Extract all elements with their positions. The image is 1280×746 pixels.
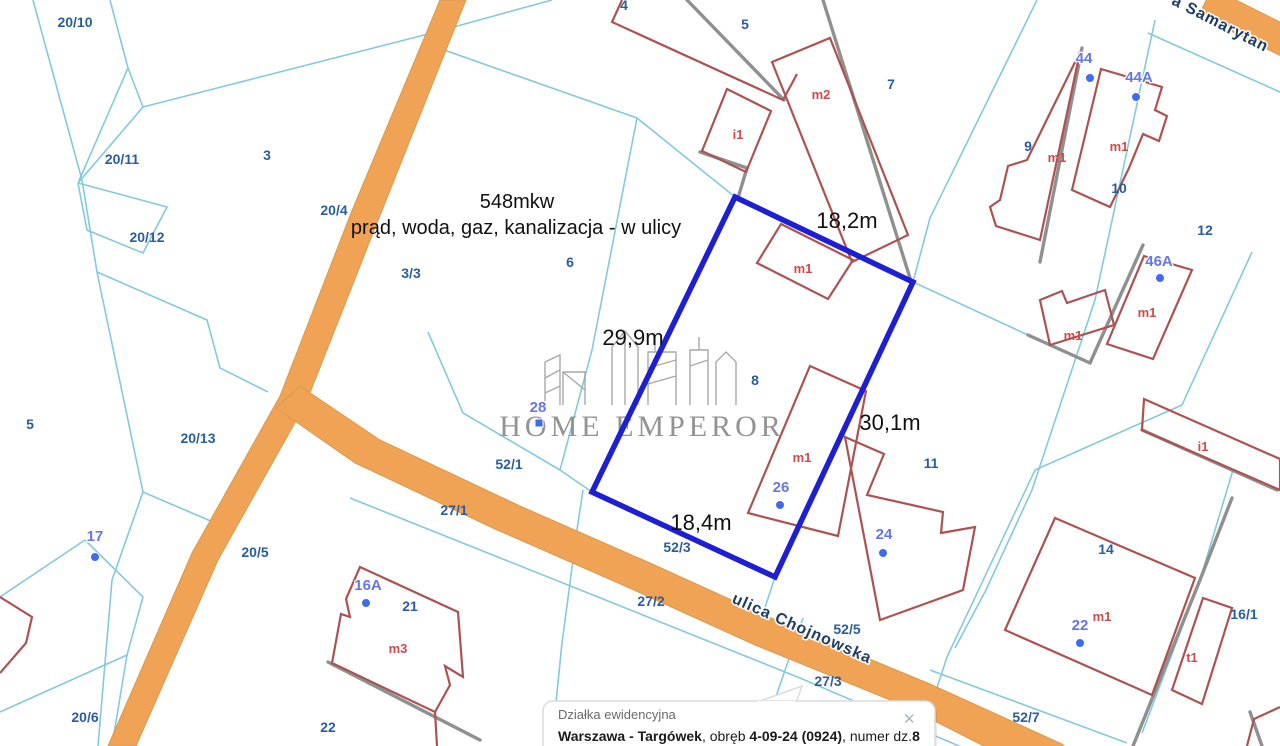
parcel-label: 52/7 bbox=[1012, 709, 1039, 725]
popup-region: Warszawa - Targówek bbox=[558, 728, 702, 744]
parcel-boundary-line bbox=[933, 252, 1252, 700]
address-marker-dot[interactable] bbox=[91, 553, 100, 562]
building-outline bbox=[990, 52, 1080, 240]
building-outline bbox=[0, 597, 32, 673]
address-marker[interactable]: 16A bbox=[354, 577, 382, 608]
parcel-boundary-line bbox=[78, 107, 143, 183]
building-label: m1 bbox=[1138, 305, 1157, 320]
parcel-label: 27/1 bbox=[440, 502, 467, 518]
parcel-label: 52/1 bbox=[495, 456, 522, 472]
building-label: m1 bbox=[1110, 139, 1129, 154]
parcel-label: 6 bbox=[566, 254, 574, 270]
parcel-label: 9 bbox=[1024, 138, 1032, 154]
parcel-label: 20/5 bbox=[241, 544, 268, 560]
parcel-label: 3/3 bbox=[401, 265, 421, 281]
parcel-boundary-line bbox=[955, 20, 1155, 648]
popup-title: Działka ewidencyjna bbox=[558, 707, 677, 722]
address-marker[interactable]: 44A bbox=[1125, 69, 1153, 102]
building-outlines bbox=[0, 0, 1280, 746]
address-number: 44A bbox=[1125, 69, 1153, 86]
parcel-label: 8 bbox=[751, 372, 759, 388]
building-label: m1 bbox=[1093, 609, 1112, 624]
parcel-boundary-line bbox=[0, 540, 85, 597]
parcel-label: 27/3 bbox=[814, 673, 841, 689]
parcel-label: 20/4 bbox=[320, 202, 347, 218]
address-marker-dot[interactable] bbox=[776, 501, 785, 510]
parcel-label: 27/2 bbox=[637, 593, 664, 609]
address-marker[interactable]: 24 bbox=[876, 526, 893, 558]
address-marker[interactable]: 26 bbox=[773, 479, 790, 510]
parcel-label: 5 bbox=[741, 16, 749, 32]
popup-pointer-seam bbox=[757, 701, 795, 704]
parcel-boundary-line bbox=[143, 33, 432, 107]
building-label: m1 bbox=[1064, 328, 1083, 343]
dimension-left: 29,9m bbox=[602, 325, 663, 350]
parcel-label: 20/12 bbox=[129, 229, 164, 245]
address-marker-dot[interactable] bbox=[1156, 274, 1165, 283]
building-label: t1 bbox=[1186, 650, 1198, 665]
parcel-label: 20/10 bbox=[57, 14, 92, 30]
parcel-boundary-line bbox=[143, 492, 213, 522]
dimension-top: 18,2m bbox=[816, 208, 877, 233]
parcel-boundary-line bbox=[128, 68, 143, 107]
wall-line bbox=[1090, 245, 1143, 363]
address-number: 24 bbox=[876, 526, 893, 543]
parcel-boundary-line bbox=[33, 0, 143, 746]
map-canvas[interactable]: HOME EMPEROR 18,2m 30,1m 18,4m 29,9m 548… bbox=[0, 0, 1280, 746]
address-number: 28 bbox=[530, 399, 547, 416]
roads bbox=[108, 0, 1280, 746]
address-marker[interactable]: 22 bbox=[1072, 617, 1089, 648]
parcel-boundary-line bbox=[97, 272, 268, 392]
parcel-label: 20/6 bbox=[71, 709, 98, 725]
parcel-label: 5 bbox=[26, 416, 34, 432]
parcel-label: 7 bbox=[887, 76, 895, 92]
address-number: 17 bbox=[87, 528, 104, 545]
building-outline bbox=[845, 437, 975, 620]
parcel-label: 14 bbox=[1098, 541, 1114, 557]
building-outline bbox=[1142, 399, 1280, 490]
popup-parcel-number: 8 bbox=[912, 728, 920, 744]
popup-close-button[interactable]: ✕ bbox=[903, 711, 916, 728]
parcel-label: 52/5 bbox=[833, 621, 860, 637]
annotation-utilities: prąd, woda, gaz, kanalizacja - w ulicy bbox=[351, 217, 681, 239]
parcel-label: 3 bbox=[263, 147, 271, 163]
address-number: 22 bbox=[1072, 617, 1089, 634]
address-marker[interactable]: 46A bbox=[1145, 253, 1173, 283]
address-marker-dot[interactable] bbox=[362, 599, 371, 608]
address-marker-dot[interactable] bbox=[1132, 93, 1141, 102]
building-labels: m2 i1 m1 m1 m1 m1 i1 m1 m1 m1 t1 m3 bbox=[389, 87, 1209, 665]
wall-line bbox=[687, 0, 784, 100]
parcel-label: 10 bbox=[1111, 180, 1127, 196]
parcel-boundary-line bbox=[913, 282, 1028, 335]
parcel-label: 4 bbox=[620, 0, 628, 13]
address-marker-dot[interactable] bbox=[879, 549, 888, 558]
address-number: 16A bbox=[354, 577, 382, 594]
annotation-area: 548mkw bbox=[480, 191, 555, 213]
parcel-boundaries bbox=[0, 0, 1280, 746]
building-label: m3 bbox=[389, 641, 408, 656]
parcel-label: 21 bbox=[402, 598, 418, 614]
address-marker[interactable]: 44 bbox=[1076, 50, 1095, 83]
parcel-label: 12 bbox=[1197, 222, 1213, 238]
wall-line bbox=[1133, 498, 1232, 746]
parcel-boundary-line bbox=[560, 470, 592, 492]
parcel-boundary-line bbox=[430, 45, 735, 197]
parcel-label: 20/11 bbox=[105, 151, 139, 167]
building-label: i1 bbox=[1198, 439, 1209, 454]
parcel-boundary-line bbox=[0, 655, 127, 712]
building-outline bbox=[332, 567, 463, 712]
address-number: 26 bbox=[773, 479, 790, 496]
address-marker-dot[interactable] bbox=[535, 419, 543, 427]
popup-parcel-info: Warszawa - Targówek, obręb 4-09-24 (0924… bbox=[558, 728, 920, 744]
parcel-boundary-line bbox=[913, 0, 1037, 282]
popup-precinct: 4-09-24 (0924) bbox=[749, 728, 842, 744]
road-north-south bbox=[108, 0, 466, 746]
building-label: m1 bbox=[793, 450, 812, 465]
building-label: i1 bbox=[733, 127, 744, 142]
popup-sep2: , numer dz. bbox=[842, 728, 912, 744]
building-label: m1 bbox=[1048, 150, 1067, 165]
address-number: 46A bbox=[1145, 253, 1173, 270]
dimension-right: 30,1m bbox=[859, 410, 920, 435]
building-label: m2 bbox=[812, 87, 831, 102]
parcel-label: 52/3 bbox=[663, 539, 690, 555]
parcel-label: 22 bbox=[320, 719, 336, 735]
address-marker-dot[interactable] bbox=[1086, 74, 1095, 83]
parcel-label: 16/1 bbox=[1230, 606, 1257, 622]
building-label: m1 bbox=[794, 261, 813, 276]
parcel-label: 11 bbox=[924, 455, 939, 471]
address-number: 44 bbox=[1076, 50, 1093, 67]
popup-sep1: , obręb bbox=[702, 728, 749, 744]
listing-annotation: 548mkw prąd, woda, gaz, kanalizacja - w … bbox=[351, 191, 681, 239]
dimension-bottom: 18,4m bbox=[670, 510, 731, 535]
address-marker-dot[interactable] bbox=[1076, 639, 1085, 648]
parcel-label: 20/13 bbox=[180, 430, 215, 446]
cadastral-map[interactable]: HOME EMPEROR 18,2m 30,1m 18,4m 29,9m 548… bbox=[0, 0, 1280, 746]
wall-line bbox=[823, 0, 910, 278]
